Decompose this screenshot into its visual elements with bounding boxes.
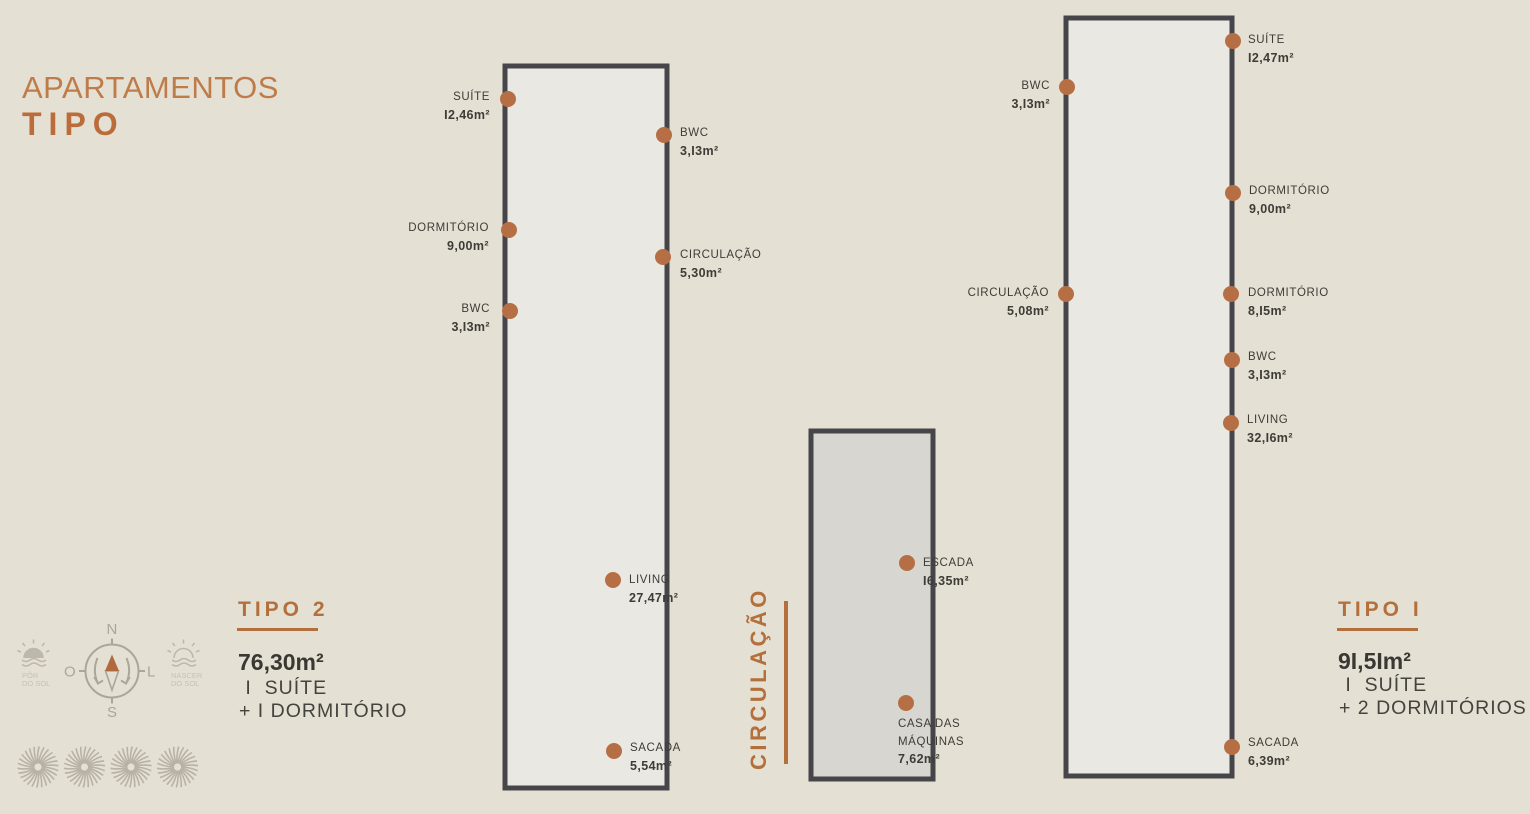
- svg-text:L: L: [147, 664, 155, 681]
- svg-text:N: N: [107, 621, 118, 638]
- svg-text:DO SOL: DO SOL: [171, 679, 199, 688]
- svg-text:DO SOL: DO SOL: [22, 679, 50, 688]
- svg-text:S: S: [107, 704, 117, 721]
- svg-text:O: O: [64, 664, 76, 681]
